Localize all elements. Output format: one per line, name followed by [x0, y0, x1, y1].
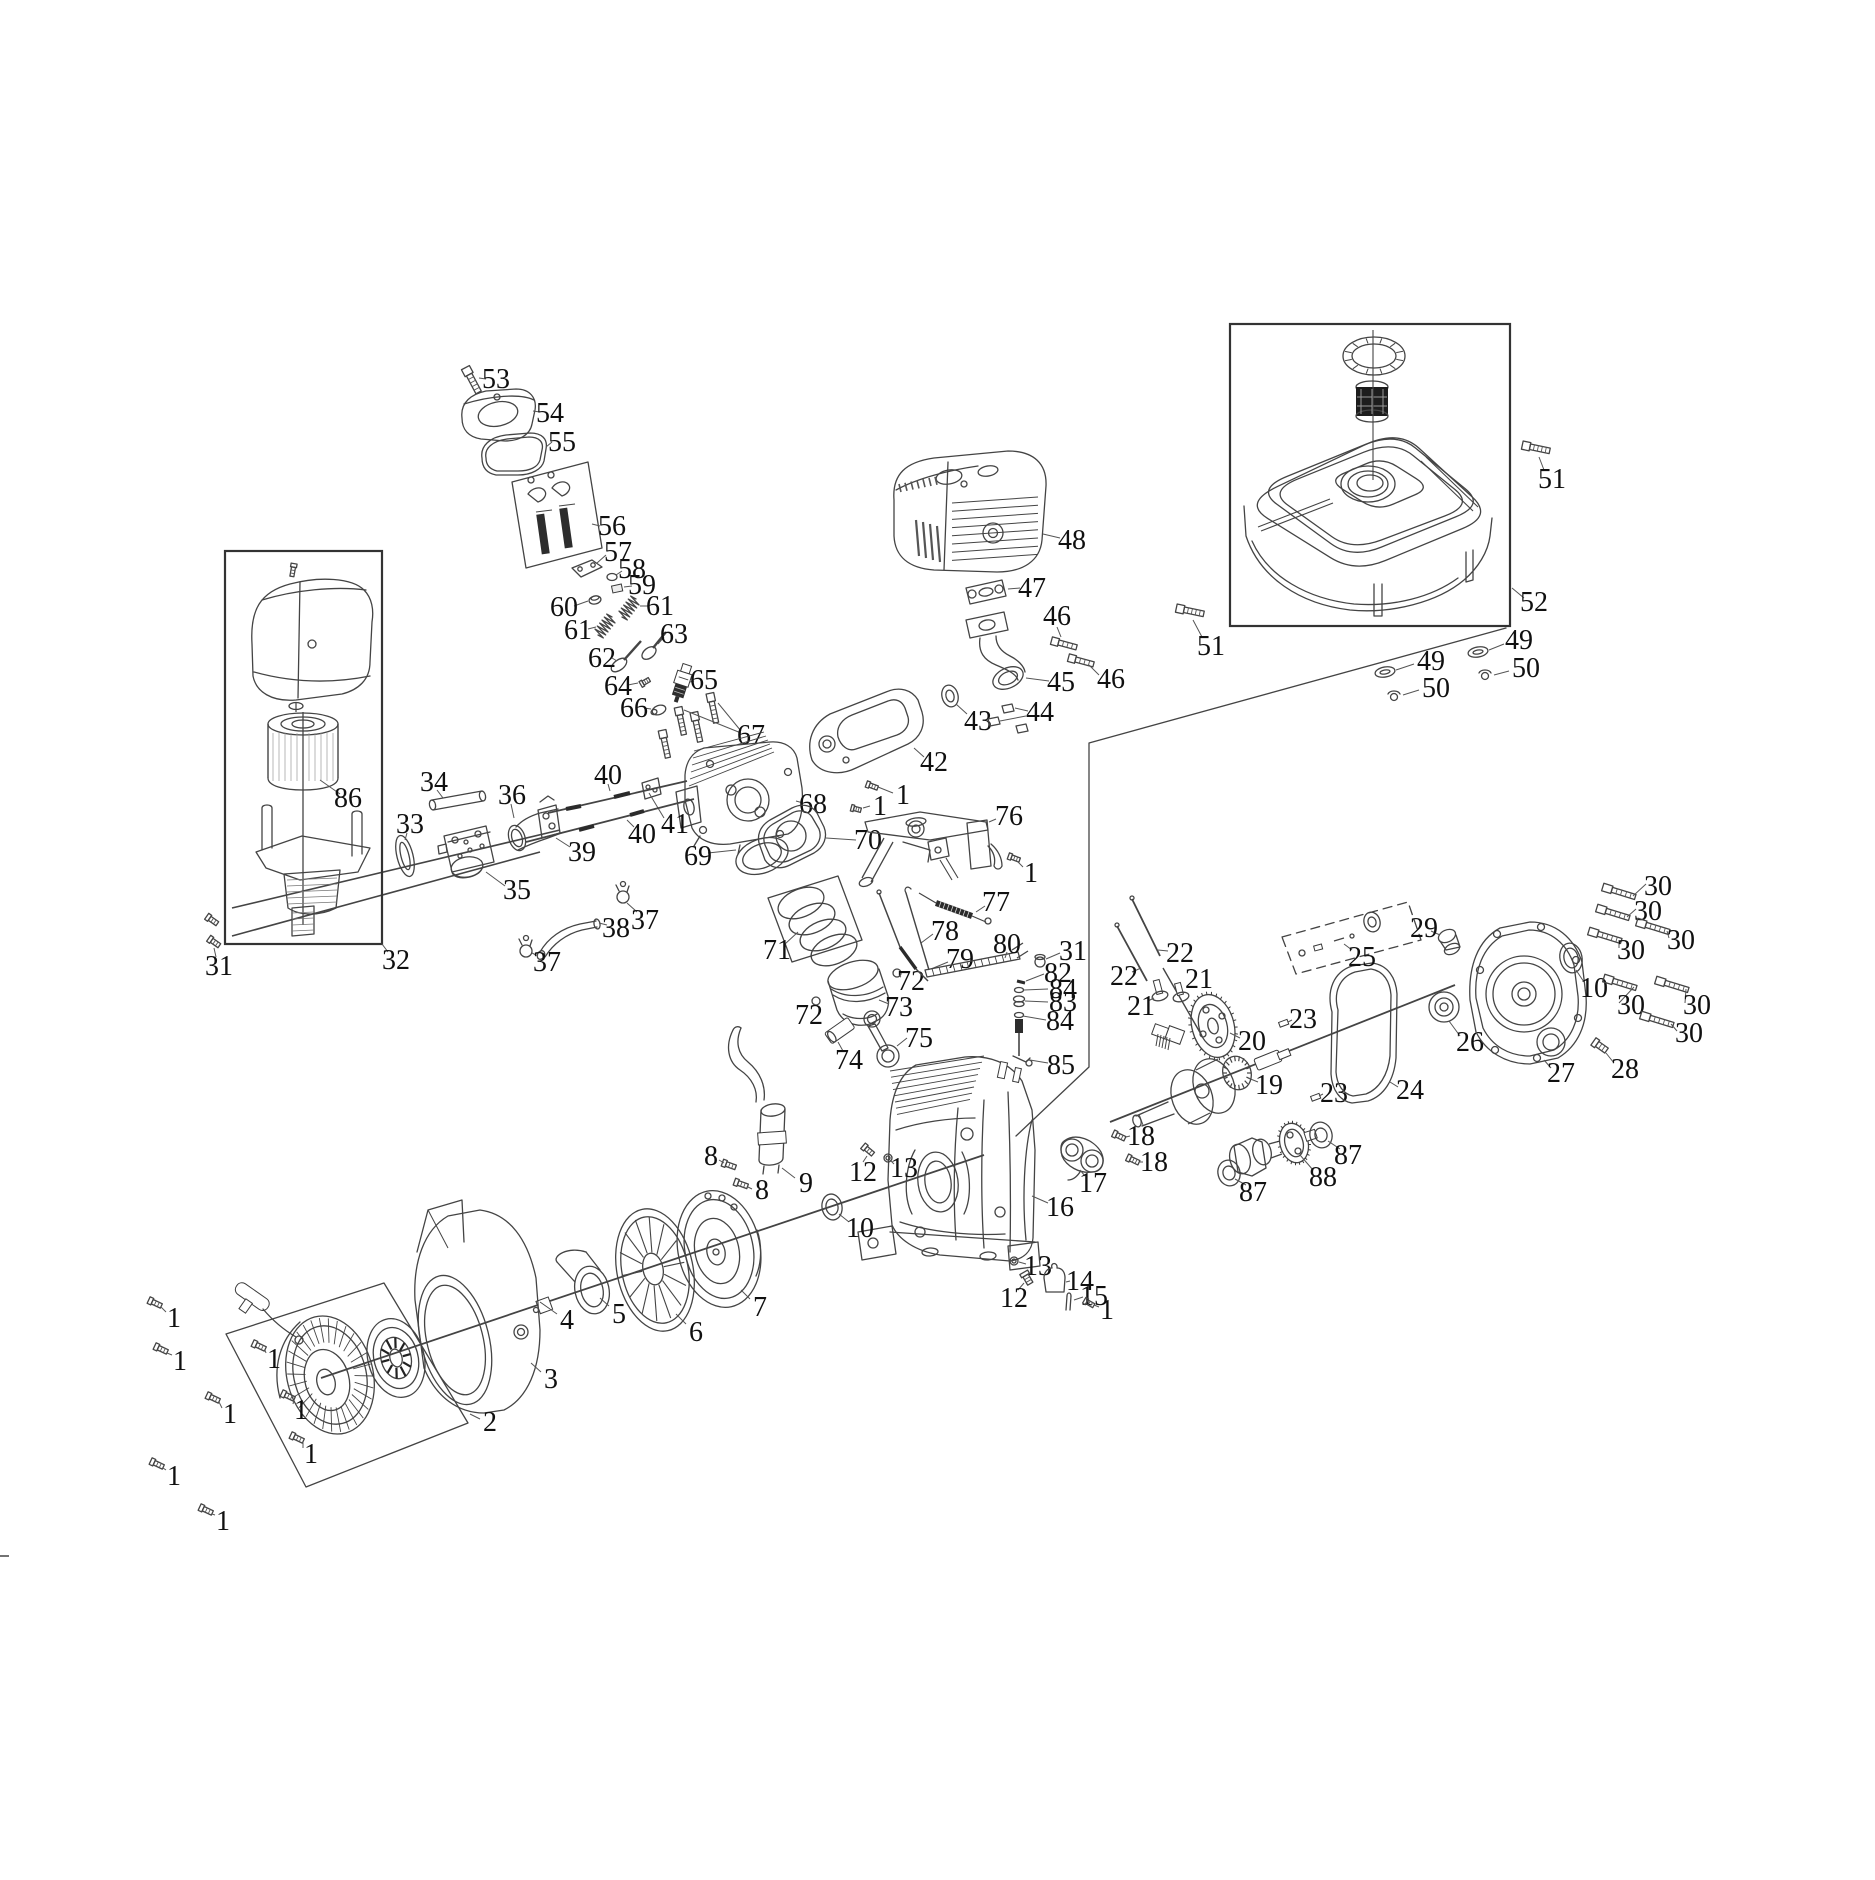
svg-text:48: 48 [1058, 525, 1086, 556]
svg-text:30: 30 [1667, 925, 1695, 956]
svg-text:29: 29 [1410, 913, 1438, 944]
svg-text:41: 41 [661, 809, 689, 840]
svg-text:16: 16 [1046, 1192, 1074, 1223]
svg-text:33: 33 [396, 809, 424, 840]
svg-text:38: 38 [602, 913, 630, 944]
svg-text:1: 1 [167, 1303, 181, 1334]
svg-text:75: 75 [905, 1023, 933, 1054]
svg-text:76: 76 [995, 801, 1023, 832]
svg-text:1: 1 [1024, 858, 1038, 889]
svg-text:21: 21 [1185, 964, 1213, 995]
svg-text:2: 2 [483, 1407, 497, 1438]
svg-text:30: 30 [1683, 990, 1711, 1021]
svg-text:87: 87 [1334, 1140, 1362, 1171]
svg-text:37: 37 [631, 905, 659, 936]
svg-text:27: 27 [1547, 1058, 1575, 1089]
svg-text:1: 1 [896, 780, 910, 811]
svg-text:17: 17 [1079, 1168, 1107, 1199]
svg-text:47: 47 [1018, 573, 1046, 604]
svg-text:50: 50 [1422, 673, 1450, 704]
svg-text:50: 50 [1512, 653, 1540, 684]
svg-text:1: 1 [167, 1461, 181, 1492]
svg-text:31: 31 [205, 951, 233, 982]
svg-text:52: 52 [1520, 587, 1548, 618]
svg-text:23: 23 [1320, 1078, 1348, 1109]
svg-text:49: 49 [1505, 625, 1533, 656]
svg-text:35: 35 [503, 875, 531, 906]
svg-text:25: 25 [1348, 942, 1376, 973]
svg-text:32: 32 [382, 945, 410, 976]
svg-text:62: 62 [588, 643, 616, 674]
svg-text:1: 1 [304, 1439, 318, 1470]
svg-text:61: 61 [564, 615, 592, 646]
svg-text:19: 19 [1255, 1070, 1283, 1101]
svg-text:51: 51 [1197, 631, 1225, 662]
svg-text:3: 3 [544, 1364, 558, 1395]
svg-text:43: 43 [964, 706, 992, 737]
svg-text:85: 85 [1047, 1050, 1075, 1081]
svg-text:1: 1 [173, 1346, 187, 1377]
svg-text:13: 13 [890, 1153, 918, 1184]
svg-text:30: 30 [1617, 935, 1645, 966]
svg-text:6: 6 [689, 1317, 703, 1348]
svg-text:23: 23 [1289, 1004, 1317, 1035]
svg-text:8: 8 [704, 1141, 718, 1172]
svg-text:1: 1 [294, 1395, 308, 1426]
svg-text:55: 55 [548, 427, 576, 458]
svg-text:24: 24 [1396, 1075, 1424, 1106]
svg-text:4: 4 [560, 1305, 574, 1336]
svg-text:69: 69 [684, 841, 712, 872]
svg-text:7: 7 [753, 1292, 767, 1323]
svg-text:63: 63 [660, 619, 688, 650]
svg-text:12: 12 [1000, 1283, 1028, 1314]
svg-text:1: 1 [223, 1399, 237, 1430]
svg-text:68: 68 [799, 789, 827, 820]
svg-text:74: 74 [835, 1045, 863, 1076]
svg-text:26: 26 [1456, 1027, 1484, 1058]
svg-text:1: 1 [1100, 1295, 1114, 1326]
svg-text:88: 88 [1309, 1162, 1337, 1193]
svg-text:9: 9 [799, 1168, 813, 1199]
svg-text:28: 28 [1611, 1054, 1639, 1085]
svg-text:72: 72 [897, 966, 925, 997]
svg-text:84: 84 [1046, 1006, 1074, 1037]
svg-text:44: 44 [1026, 697, 1054, 728]
svg-text:42: 42 [920, 747, 948, 778]
svg-text:22: 22 [1110, 961, 1138, 992]
svg-text:71: 71 [763, 935, 791, 966]
svg-text:61: 61 [646, 591, 674, 622]
svg-text:78: 78 [931, 916, 959, 947]
svg-text:36: 36 [498, 780, 526, 811]
svg-text:46: 46 [1097, 664, 1125, 695]
svg-text:12: 12 [849, 1157, 877, 1188]
svg-text:20: 20 [1238, 1026, 1266, 1057]
svg-text:8: 8 [755, 1175, 769, 1206]
svg-text:87: 87 [1239, 1177, 1267, 1208]
svg-text:37: 37 [533, 947, 561, 978]
svg-text:30: 30 [1675, 1018, 1703, 1049]
svg-text:10: 10 [846, 1213, 874, 1244]
svg-text:72: 72 [795, 1000, 823, 1031]
svg-text:40: 40 [594, 760, 622, 791]
svg-text:86: 86 [334, 783, 362, 814]
svg-text:1: 1 [216, 1506, 230, 1537]
svg-text:1: 1 [267, 1344, 281, 1375]
svg-text:51: 51 [1538, 464, 1566, 495]
svg-text:70: 70 [854, 825, 882, 856]
svg-text:5: 5 [612, 1299, 626, 1330]
svg-text:54: 54 [536, 398, 564, 429]
svg-text:34: 34 [420, 767, 448, 798]
svg-text:80: 80 [993, 929, 1021, 960]
svg-text:1: 1 [873, 791, 887, 822]
svg-text:46: 46 [1043, 601, 1071, 632]
svg-text:21: 21 [1127, 991, 1155, 1022]
svg-text:18: 18 [1140, 1147, 1168, 1178]
svg-text:39: 39 [568, 837, 596, 868]
svg-text:65: 65 [690, 665, 718, 696]
svg-text:45: 45 [1047, 667, 1075, 698]
svg-text:40: 40 [628, 819, 656, 850]
svg-text:66: 66 [620, 693, 648, 724]
svg-text:77: 77 [982, 887, 1010, 918]
